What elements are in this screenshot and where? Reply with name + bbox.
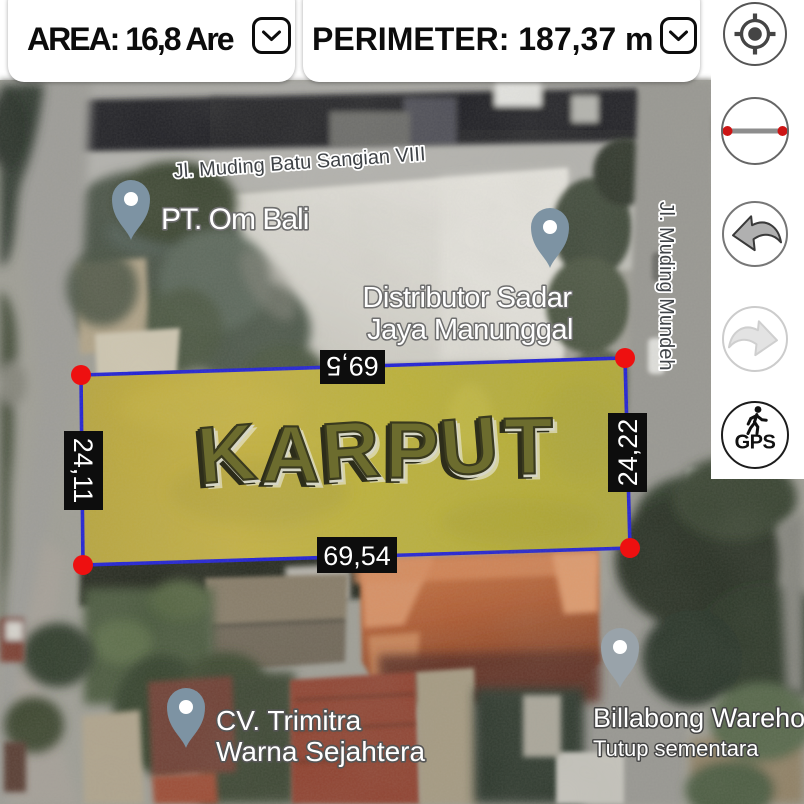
svg-text:Jaya Manunggal: Jaya Manunggal	[367, 314, 573, 346]
svg-text:24,11: 24,11	[68, 438, 98, 504]
svg-text:24,22: 24,22	[613, 419, 643, 487]
svg-text:Jl. Muding Mundeh: Jl. Muding Mundeh	[655, 202, 677, 371]
svg-text:Billabong Wareho: Billabong Wareho	[593, 703, 804, 733]
svg-text:GPS: GPS	[735, 432, 776, 454]
svg-text:69,54: 69,54	[323, 541, 391, 571]
svg-text:Warna Sejahtera: Warna Sejahtera	[216, 736, 425, 767]
svg-text:PT. Om Bali: PT. Om Bali	[161, 203, 308, 236]
svg-text:69,5: 69,5	[326, 351, 379, 381]
svg-text:CV. Trimitra: CV. Trimitra	[216, 705, 362, 736]
svg-text:Distributor Sadar: Distributor Sadar	[362, 282, 572, 314]
svg-text:KARPUT: KARPUT	[194, 397, 559, 503]
svg-text:Tutup sementara: Tutup sementara	[593, 736, 759, 761]
